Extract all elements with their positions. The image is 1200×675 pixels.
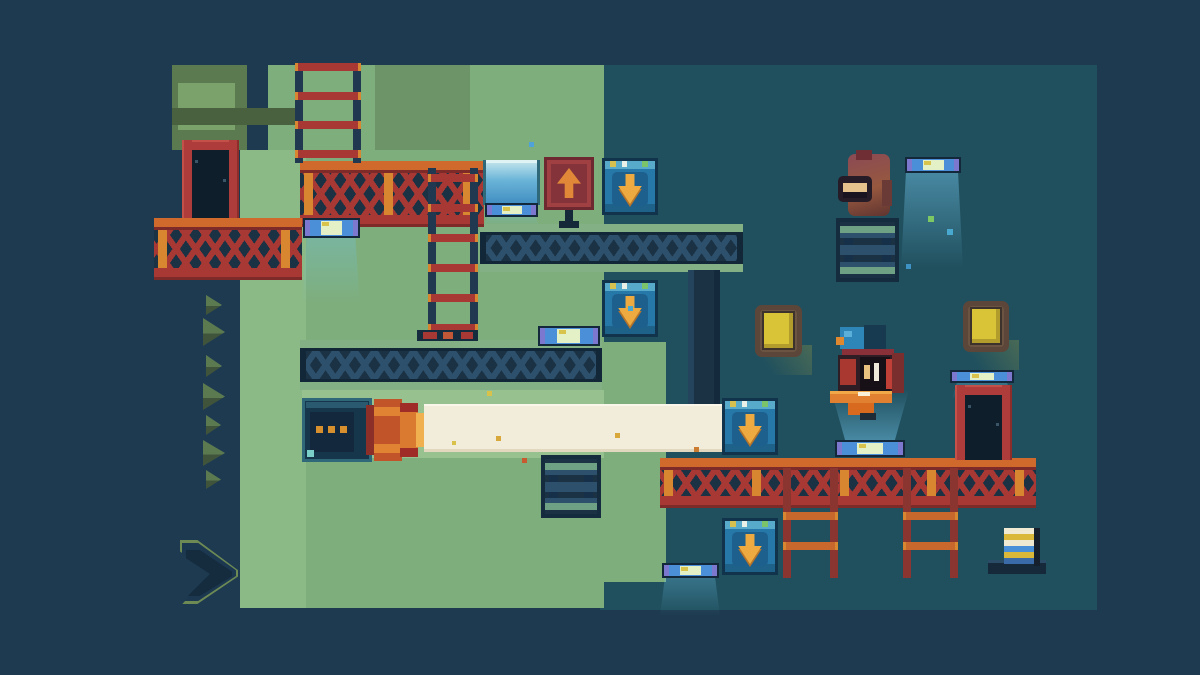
glow-lamp-bottom-edge (660, 578, 720, 616)
platform-post (840, 470, 849, 496)
lamp-tube (487, 205, 536, 215)
door-frame-right (1002, 385, 1012, 460)
emitter-head-bottom (400, 448, 418, 457)
lamp-yellow-pixel (503, 207, 510, 211)
ladder-rung (428, 294, 478, 302)
mini-chevron (206, 355, 222, 377)
pedestal-stripe-top (545, 463, 597, 470)
beam-cap-left (300, 348, 306, 382)
player-leg (860, 413, 876, 420)
platform-bottom-shadow (660, 505, 1036, 508)
emitter-head-top (400, 403, 418, 412)
laser-beam (424, 404, 722, 452)
machine-teal-pixel (307, 450, 314, 457)
item-stripe (1004, 558, 1034, 564)
game-scene (0, 0, 1200, 675)
player-body-red (840, 359, 856, 385)
lamp-left (303, 218, 360, 238)
lamp-tube (907, 159, 959, 171)
lamp-yellow-pixel (924, 161, 931, 165)
door-interior (964, 394, 1003, 460)
lamp-end-left (305, 220, 310, 236)
green-wall-top-shaded (375, 65, 470, 158)
ladder-rail-right (830, 468, 838, 578)
lamp-end-left (487, 205, 492, 215)
mini-chevron (203, 318, 225, 346)
lamp-tube (305, 220, 358, 236)
ladder-rung (903, 542, 958, 550)
particle (615, 433, 620, 438)
platform-truss-body (154, 230, 302, 268)
machine-dot (328, 426, 335, 433)
vent-red-1 (423, 332, 437, 339)
lamp-end-right (531, 205, 536, 215)
block-top-pixel-white (622, 283, 627, 289)
big-chevron-marker (180, 540, 238, 604)
particle (947, 229, 953, 235)
block-top-pixel-white (742, 401, 747, 407)
vent-strip (417, 330, 478, 341)
pedestal-band-mid (840, 245, 895, 255)
platform-bottom-chord (154, 268, 302, 277)
block-top-pixel-green (642, 283, 648, 289)
lamp-mid (538, 326, 600, 346)
ladder-middle (428, 168, 478, 336)
lamp-end-right (1007, 372, 1012, 381)
lamp-end-right (898, 442, 903, 455)
ladder-rung (428, 264, 478, 272)
lamp-end-left (664, 565, 669, 576)
mini-chevron (203, 383, 225, 410)
lamp-end-left (952, 372, 957, 381)
glow-lamp-left (302, 238, 360, 304)
door-left[interactable] (182, 140, 239, 218)
ladder-rail-left (903, 468, 911, 578)
mini-chevron (206, 295, 222, 315)
pedestal-stripe-top (840, 226, 895, 233)
emitter-stripe-top (374, 407, 402, 416)
lamp-end-right (712, 565, 717, 576)
player-cap-orange-pixel (836, 337, 844, 345)
block-top-pixel-yellow (610, 283, 616, 289)
block-top-pixel-yellow (730, 521, 736, 527)
monkey-muzzle (843, 192, 867, 198)
player-character[interactable] (830, 325, 905, 420)
sign-base (559, 221, 579, 228)
block-top-pixel-yellow (730, 401, 736, 407)
vent-red-2 (443, 332, 453, 339)
platform-bottom-chord (660, 496, 1036, 505)
olive-band (172, 108, 302, 125)
beam-edge-bottom (300, 382, 602, 390)
platform-post (752, 470, 761, 496)
emitter-stripe-bottom (374, 444, 402, 453)
particle (928, 216, 934, 222)
arrow-block-down-4[interactable] (722, 518, 778, 575)
lamp-tube (540, 328, 598, 344)
beam-cap-left (480, 232, 486, 264)
platform-post (281, 230, 290, 268)
ladder-rung (295, 150, 361, 158)
lamp-top-right (905, 157, 961, 173)
pedestal-under-monkey (836, 218, 899, 282)
sign-up-arrow (544, 157, 594, 228)
beam-body (300, 351, 602, 379)
ladder-rail-right (353, 63, 361, 163)
lamp-yellow-pixel (559, 330, 566, 334)
lamp-yellow-pixel (859, 444, 866, 448)
ladder-rail-left (428, 168, 436, 336)
particle (529, 142, 534, 147)
platform-post (664, 470, 673, 496)
particle (694, 447, 699, 452)
ladder-rail-left (295, 63, 303, 163)
vent-red-3 (461, 332, 473, 339)
lamp-end-left (540, 328, 545, 344)
beam-cap-right (737, 232, 743, 264)
light-window (483, 160, 540, 205)
ladder-rung (295, 92, 361, 100)
lamp-bottom-edge (662, 563, 719, 578)
ibeam-upper (480, 224, 743, 272)
machine-dot (340, 426, 347, 433)
player-cap-highlight (844, 331, 852, 337)
player-cap-dark (864, 325, 886, 349)
lamp-under-window (485, 203, 538, 217)
ladder-hanging-right (903, 468, 958, 578)
laser-machine (302, 398, 372, 462)
particle (522, 458, 527, 463)
platform-post (158, 230, 167, 268)
yellow-wall-light-left (755, 305, 802, 357)
ladder-rail-right (950, 468, 958, 578)
player-shoulder (892, 353, 904, 393)
door-frame-left (182, 140, 192, 218)
beam-edge-top (480, 224, 743, 232)
monkey-visor (843, 183, 867, 192)
lamp-end-left (907, 159, 912, 171)
block-top-pixel-white (742, 521, 747, 527)
truss-platform-left (154, 218, 302, 280)
ladder-rail-right (470, 168, 478, 336)
particle (906, 264, 911, 269)
ladder-rung (783, 512, 838, 520)
ladder-rung (428, 234, 478, 242)
pedestal-mid-bottom (541, 455, 601, 518)
pedestal-stripe-bottom (545, 503, 597, 510)
green-wall-right-ext (604, 342, 666, 582)
platform-post (304, 173, 313, 215)
door-right[interactable] (955, 385, 1012, 460)
bulb-core (764, 313, 793, 348)
mini-chevron (206, 470, 221, 489)
lamp-yellow-pixel (681, 567, 688, 571)
arrow-block-down-3[interactable] (722, 398, 778, 455)
monkey-creature[interactable] (838, 150, 896, 218)
monkey-tuft (856, 150, 872, 160)
platform-post (1015, 470, 1024, 496)
ladder-rail-left (783, 468, 791, 578)
ladder-rung (903, 512, 958, 520)
beam-cap-right (596, 348, 602, 382)
platform-bottom-shadow (154, 277, 302, 280)
machine-dot (316, 426, 323, 433)
ladder-rung (295, 63, 361, 71)
machine-top-strip (306, 402, 368, 408)
player-panel-mark-2 (874, 363, 879, 381)
ladder-rung (783, 542, 838, 550)
door-handle (996, 423, 999, 426)
ladder-rung (295, 121, 361, 129)
block-top-pixel-green (762, 521, 768, 527)
lamp-yellow-pixel (972, 374, 979, 378)
beam-body (480, 235, 743, 261)
emitter-muzzle (416, 413, 424, 447)
truss-platform-bottom (660, 458, 1036, 508)
platform-top-chord (154, 218, 302, 227)
ibeam-lower (300, 340, 602, 390)
lamp-tube (664, 565, 717, 576)
lamp-tube (952, 372, 1012, 381)
particle (452, 441, 456, 445)
lamp-end-right (954, 159, 959, 171)
player-blaster-muzzle (858, 392, 870, 396)
lamp-end-left (837, 442, 842, 455)
chevron-inner-shadow (186, 550, 232, 596)
door-frame-right (229, 140, 239, 218)
pedestal-band-mid (545, 482, 597, 492)
mini-chevron (206, 415, 221, 435)
block-top-pixel-white (622, 161, 627, 167)
particle (496, 436, 501, 441)
block-top-pixel-green (642, 161, 648, 167)
arrow-block-down-1[interactable] (602, 158, 658, 215)
ladder-tower-top (295, 63, 361, 163)
player-panel-mark-1 (864, 365, 870, 379)
laser-emitter (366, 399, 424, 461)
particle (628, 306, 633, 311)
ladder-rung (428, 204, 478, 212)
support-pillar (688, 270, 720, 404)
block-top-pixel-yellow (610, 161, 616, 167)
platform-post (384, 173, 393, 215)
bulb-core (972, 309, 1000, 343)
lamp-end-right (593, 328, 598, 344)
collectible-striped-stack[interactable] (1004, 528, 1040, 566)
door-handle (223, 179, 226, 182)
particle (487, 391, 492, 396)
lamp-tube (837, 442, 903, 455)
lamp-yellow-pixel (322, 222, 329, 226)
ladder-hanging-left (783, 468, 838, 578)
lamp-end-right (353, 220, 358, 236)
door-hinge (195, 160, 198, 163)
lamp-under-character (835, 440, 905, 457)
mini-chevron (203, 440, 225, 466)
ladder-rung (428, 174, 478, 182)
pedestal-stripe-bottom (840, 267, 895, 274)
item-edge-shadow (1034, 528, 1040, 566)
monkey-arm (882, 180, 892, 206)
door-frame-left (955, 385, 965, 460)
yellow-wall-light-right (963, 301, 1009, 352)
block-top-pixel-green (762, 401, 768, 407)
door-hinge (968, 405, 971, 408)
lamp-above-right-door (950, 370, 1014, 383)
